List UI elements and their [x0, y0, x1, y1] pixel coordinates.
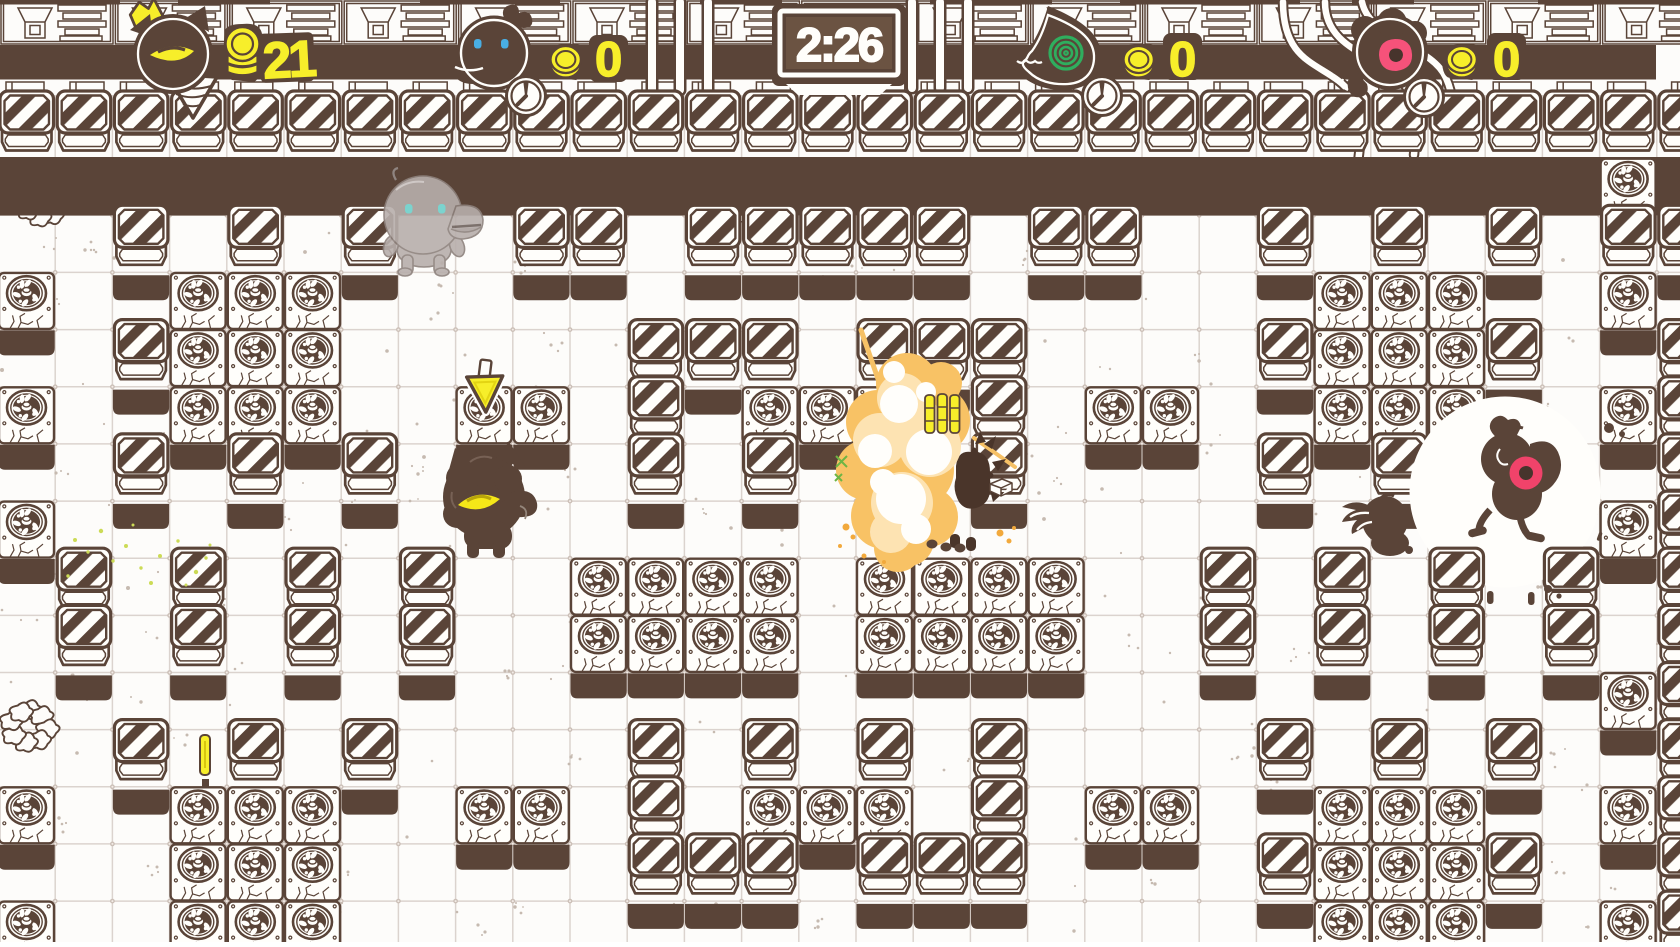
svg-text:0: 0	[1169, 33, 1196, 87]
svg-text:0: 0	[1493, 33, 1520, 87]
svg-text:21: 21	[262, 30, 317, 90]
svg-text:2:26: 2:26	[796, 18, 883, 71]
svg-text:0: 0	[595, 33, 622, 87]
